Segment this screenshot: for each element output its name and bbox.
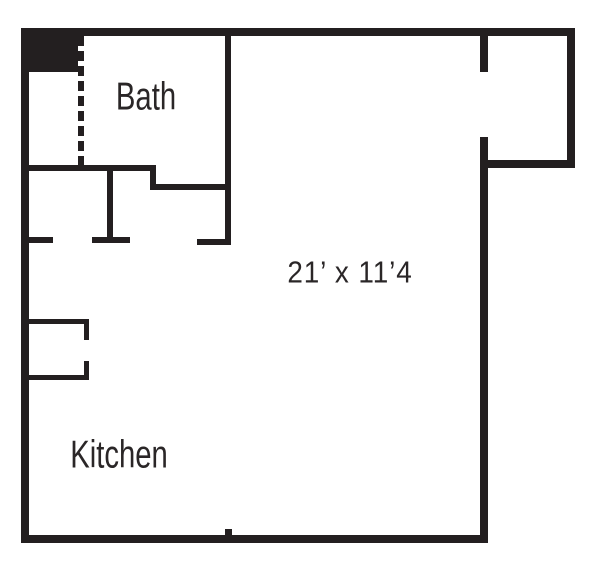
wall-left: [21, 28, 29, 543]
wall-alcove-bottom: [480, 160, 575, 168]
wall-top: [21, 28, 575, 36]
kitchen-closet-top-wall: [21, 319, 88, 324]
dimension-label-main-room: 21’ x 11’4: [287, 257, 412, 288]
bottom-wall-stub-mark: [225, 529, 232, 535]
bath-fixture-block: [29, 36, 83, 72]
room-label-bath: Bath: [116, 78, 176, 117]
bath-right-wall-end-cap: [197, 239, 231, 245]
kitchen-closet-bottom-wall: [21, 375, 88, 380]
hall-divider-end-cap: [92, 237, 130, 243]
bath-bottom-wall: [21, 165, 156, 171]
bath-step-wall-horizontal: [150, 184, 231, 190]
hall-left-door-stub: [29, 237, 53, 243]
wall-right-upper: [567, 28, 575, 168]
wall-bottom: [21, 535, 488, 543]
wall-right-lower: [480, 137, 488, 543]
hall-divider-wall: [107, 165, 113, 243]
bath-right-wall: [225, 28, 231, 245]
room-label-kitchen: Kitchen: [70, 436, 168, 475]
floor-plan: Bath 21’ x 11’4 Kitchen: [0, 0, 600, 564]
alcove-door-stub: [480, 28, 488, 72]
kitchen-closet-right-upper-stub: [84, 319, 89, 340]
dashed-partition-line: [78, 36, 84, 165]
